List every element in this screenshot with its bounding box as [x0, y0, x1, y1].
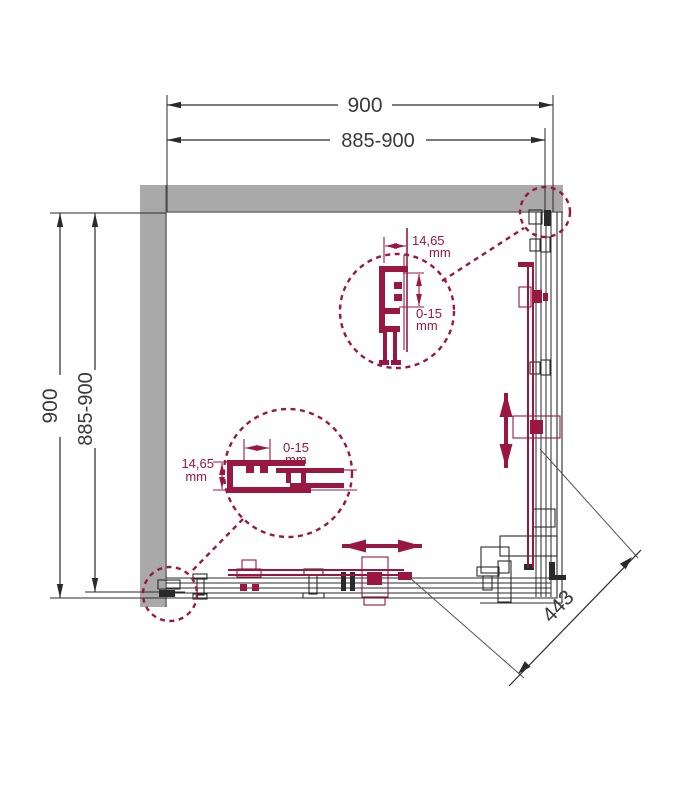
- profile-part: [394, 282, 402, 289]
- profile-part: [276, 468, 344, 473]
- outer-frame-edge: [166, 212, 557, 598]
- profile-part: [246, 466, 254, 473]
- dim-left-outer-label: 900: [39, 388, 62, 423]
- profile-part: [379, 360, 389, 365]
- arrowhead: [620, 557, 632, 569]
- profile-part: [393, 332, 397, 362]
- detail-top-profile: 14,65 mm 0-15 mm: [379, 228, 451, 365]
- bracket-part: [367, 572, 382, 585]
- profile-part: [286, 473, 291, 483]
- detail-top-range-unit: mm: [416, 318, 438, 333]
- dim-top-outer-label: 900: [347, 94, 382, 117]
- callout-connector: [190, 519, 243, 573]
- drawing-canvas: 900 885-900 900 885-900: [0, 0, 685, 800]
- detail-side-profile: 0-15 mm 14,65 mm: [181, 439, 357, 493]
- roller-part: [240, 584, 247, 591]
- clamp-part: [530, 239, 540, 251]
- bracket-part: [530, 420, 543, 434]
- clamp-part: [530, 362, 540, 374]
- profile-part: [394, 294, 402, 301]
- roller-part: [242, 560, 256, 569]
- profile-part: [391, 360, 401, 365]
- profile-part: [383, 308, 400, 314]
- dimension-left-inner: 885-900: [75, 213, 185, 592]
- detail-side-range-unit: mm: [285, 452, 307, 467]
- roller-part: [252, 584, 259, 591]
- detail-side-width-unit: mm: [185, 469, 207, 484]
- connector-part: [549, 575, 566, 580]
- wall-top: [140, 185, 563, 212]
- roller-part: [533, 290, 542, 303]
- outer-frame-edge: [480, 212, 562, 603]
- detail-top-width-unit: mm: [429, 245, 451, 260]
- profile-part: [260, 466, 268, 473]
- wall-top-fill: [140, 185, 563, 212]
- roller-part: [543, 293, 548, 301]
- callout-connector: [442, 228, 524, 281]
- profile-part: [379, 266, 385, 333]
- profile-part: [290, 483, 344, 488]
- wall-left-fill: [140, 185, 166, 607]
- profile-part: [383, 326, 400, 332]
- wall-left: [140, 185, 166, 607]
- profile-part: [159, 590, 175, 597]
- dim-left-inner-label: 885-900: [75, 372, 97, 445]
- corner-connector: [481, 536, 566, 580]
- profile-part: [301, 473, 306, 483]
- clamp-part: [477, 567, 499, 576]
- connector-part: [481, 547, 509, 573]
- glass-clamp: [530, 237, 550, 252]
- profile-part: [383, 332, 387, 362]
- arrowhead: [518, 661, 531, 674]
- leader-line: [540, 449, 638, 558]
- shower-enclosure-technical-drawing: 900 885-900 900 885-900: [0, 0, 685, 800]
- door-profile-end: [398, 572, 412, 580]
- door-profile-cap: [518, 262, 534, 267]
- profile-part: [544, 210, 551, 226]
- roller-part: [519, 287, 531, 307]
- dim-top-inner-label: 885-900: [341, 130, 414, 152]
